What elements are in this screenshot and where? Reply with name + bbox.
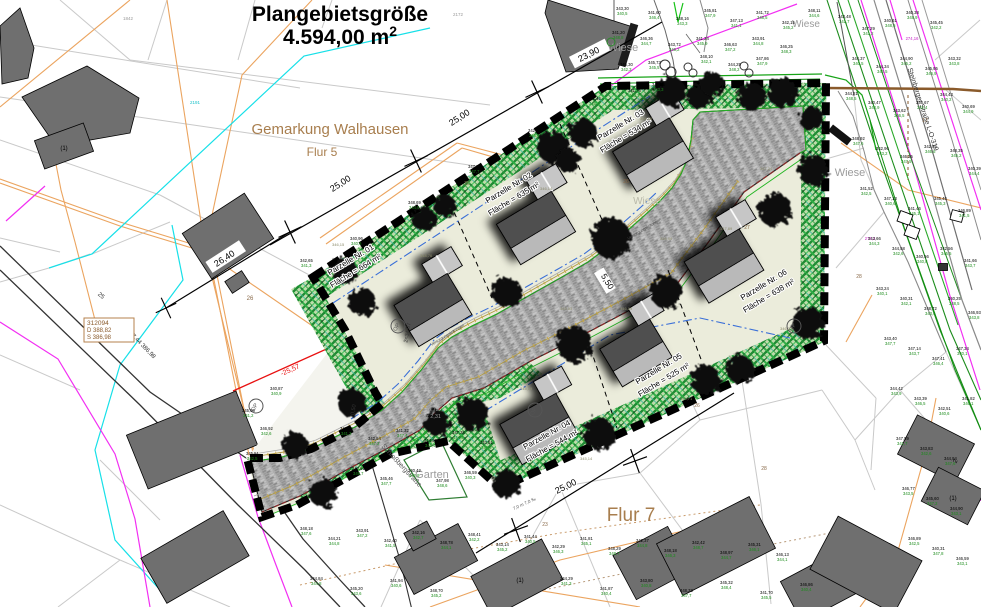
svg-text:347,6: 347,6 <box>301 531 312 536</box>
svg-text:345,2: 345,2 <box>951 153 962 158</box>
svg-text:346,1: 346,1 <box>963 401 974 406</box>
svg-text:347,9: 347,9 <box>705 13 716 18</box>
svg-text:346,3: 346,3 <box>553 549 564 554</box>
svg-text:345,19: 345,19 <box>520 386 533 391</box>
svg-text:342,7: 342,7 <box>413 535 424 540</box>
svg-text:344,9: 344,9 <box>869 105 880 110</box>
svg-text:348,9: 348,9 <box>481 445 492 450</box>
svg-text:23: 23 <box>542 522 548 528</box>
svg-text:340,6: 340,6 <box>939 411 950 416</box>
svg-text:312094: 312094 <box>87 320 109 327</box>
svg-text:340,6: 340,6 <box>885 201 896 206</box>
svg-text:26: 26 <box>464 181 470 187</box>
svg-text:Flur 5: Flur 5 <box>307 145 338 159</box>
svg-text:345,5: 345,5 <box>761 595 772 600</box>
svg-text:346,15: 346,15 <box>332 242 345 247</box>
svg-text:348,3: 348,3 <box>781 49 792 54</box>
svg-text:347,7: 347,7 <box>681 593 692 598</box>
svg-text:D 387,58: D 387,58 <box>422 393 444 399</box>
svg-text:344,8: 344,8 <box>311 581 322 586</box>
svg-text:344,8: 344,8 <box>753 41 764 46</box>
svg-text:25,00: 25,00 <box>447 107 471 128</box>
svg-text:344,4: 344,4 <box>969 171 980 176</box>
svg-text:Hz 2,31: Hz 2,31 <box>422 414 441 420</box>
svg-text:348,8: 348,8 <box>613 35 624 40</box>
svg-text:340,4: 340,4 <box>801 587 812 592</box>
svg-text:340,1: 340,1 <box>957 351 968 356</box>
svg-text:348,7: 348,7 <box>693 545 704 550</box>
svg-text:347,7: 347,7 <box>381 481 392 486</box>
svg-text:341,5: 341,5 <box>959 213 970 218</box>
svg-text:343,1: 343,1 <box>951 511 962 516</box>
svg-text:343,6: 343,6 <box>925 311 936 316</box>
svg-text:7,0 m 7,0 ‰: 7,0 m 7,0 ‰ <box>512 496 537 511</box>
svg-text:348,2: 348,2 <box>729 67 740 72</box>
svg-text:344,9: 344,9 <box>963 109 974 114</box>
svg-text:342,5: 342,5 <box>861 191 872 196</box>
svg-text:345,2: 345,2 <box>783 25 794 30</box>
svg-text:343,6: 343,6 <box>351 591 362 596</box>
svg-text:1842: 1842 <box>123 16 134 21</box>
svg-text:2191: 2191 <box>190 100 201 105</box>
svg-text:343,73: 343,73 <box>422 407 439 413</box>
svg-text:343,8: 343,8 <box>969 315 980 320</box>
svg-text:345,5: 345,5 <box>941 251 952 256</box>
svg-text:348,9: 348,9 <box>907 15 918 20</box>
svg-text:341,3: 341,3 <box>561 581 572 586</box>
svg-text:342,6: 342,6 <box>921 451 932 456</box>
svg-text:(1): (1) <box>949 496 956 502</box>
svg-text:Wiese: Wiese <box>792 19 820 30</box>
svg-text:347,5: 347,5 <box>901 159 912 164</box>
svg-text:342,9: 342,9 <box>409 473 420 478</box>
svg-text:344,7: 344,7 <box>721 555 732 560</box>
svg-text:(1): (1) <box>516 578 523 584</box>
svg-text:342,5: 342,5 <box>877 69 888 74</box>
svg-text:348,7: 348,7 <box>353 471 364 476</box>
svg-text:344,9: 344,9 <box>409 205 420 210</box>
svg-text:342,4: 342,4 <box>917 105 928 110</box>
svg-text:340,6: 340,6 <box>351 241 362 246</box>
svg-text:341,2: 341,2 <box>243 413 254 418</box>
svg-text:340,4: 340,4 <box>601 591 612 596</box>
svg-text:346,5: 346,5 <box>915 401 926 406</box>
svg-text:343,7: 343,7 <box>965 263 976 268</box>
svg-text:4.594,00 m2: 4.594,00 m2 <box>283 23 397 49</box>
svg-text:345,9: 345,9 <box>697 41 708 46</box>
svg-text:341,2: 341,2 <box>863 31 874 36</box>
svg-text:27: 27 <box>744 225 750 231</box>
svg-text:345,2: 345,2 <box>431 593 442 598</box>
svg-text:28: 28 <box>856 274 862 280</box>
svg-text:25,00: 25,00 <box>328 173 352 194</box>
svg-text:348,5: 348,5 <box>949 301 960 306</box>
svg-text:348,4: 348,4 <box>721 585 732 590</box>
svg-text:346,89: 346,89 <box>620 306 633 311</box>
svg-text:347,6: 347,6 <box>945 461 956 466</box>
svg-text:345,14: 345,14 <box>580 456 593 461</box>
svg-text:347,2: 347,2 <box>725 47 736 52</box>
svg-text:345,2: 345,2 <box>901 61 912 66</box>
svg-text:347,24: 347,24 <box>760 166 773 171</box>
svg-text:345,2: 345,2 <box>497 547 508 552</box>
svg-text:346,4: 346,4 <box>933 361 944 366</box>
svg-text:S 384,38: S 384,38 <box>422 400 444 406</box>
svg-text:348,5: 348,5 <box>757 15 768 20</box>
svg-text:340,5: 340,5 <box>617 11 628 16</box>
svg-text:341,3: 341,3 <box>341 431 352 436</box>
svg-text:342,2: 342,2 <box>469 537 480 542</box>
svg-text:348,5: 348,5 <box>885 23 896 28</box>
svg-text:345,1: 345,1 <box>581 541 592 546</box>
svg-text:346,3: 346,3 <box>665 553 676 558</box>
svg-text:342,1: 342,1 <box>901 301 912 306</box>
svg-text:346,14: 346,14 <box>540 186 553 191</box>
svg-text:346,37: 346,37 <box>780 326 793 331</box>
svg-text:344,8: 344,8 <box>637 543 648 548</box>
svg-text:344,1: 344,1 <box>441 545 452 550</box>
svg-text:344,7: 344,7 <box>641 41 652 46</box>
svg-text:341,1: 341,1 <box>731 23 742 28</box>
svg-text:341,3: 341,3 <box>301 263 312 268</box>
svg-text:343,3: 343,3 <box>653 87 664 92</box>
svg-text:25,00: 25,00 <box>553 477 578 496</box>
svg-text:28: 28 <box>761 466 767 472</box>
svg-text:346,6: 346,6 <box>925 149 936 154</box>
svg-text:347,2: 347,2 <box>357 533 368 538</box>
svg-text:Plangebietsgröße: Plangebietsgröße <box>252 3 428 26</box>
svg-text:341,5: 341,5 <box>385 543 396 548</box>
svg-text:345,71: 345,71 <box>680 396 693 401</box>
svg-text:345,5: 345,5 <box>649 65 660 70</box>
svg-text:341,7: 341,7 <box>839 19 850 24</box>
svg-text:345,4: 345,4 <box>589 101 600 106</box>
svg-text:26: 26 <box>694 403 700 409</box>
svg-text:343,8: 343,8 <box>949 61 960 66</box>
svg-text:347,7: 347,7 <box>885 341 896 346</box>
svg-text:346,2: 346,2 <box>669 47 680 52</box>
svg-text:346,5: 346,5 <box>894 113 905 118</box>
svg-text:346,99: 346,99 <box>660 236 673 241</box>
svg-text:25: 25 <box>96 292 105 301</box>
svg-text:Wiese: Wiese <box>835 167 866 179</box>
svg-text:345,1: 345,1 <box>909 211 920 216</box>
svg-text:343,2: 343,2 <box>877 151 888 156</box>
svg-text:340,2: 340,2 <box>941 97 952 102</box>
svg-text:340,9: 340,9 <box>271 391 282 396</box>
svg-text:343,7: 343,7 <box>909 351 920 356</box>
svg-text:274,16: 274,16 <box>906 36 919 41</box>
svg-text:344,6: 344,6 <box>453 435 464 440</box>
svg-text:Flur 7: Flur 7 <box>607 505 656 526</box>
svg-text:344,8: 344,8 <box>329 541 340 546</box>
svg-text:342,5: 342,5 <box>247 456 258 461</box>
svg-text:344,6: 344,6 <box>809 13 820 18</box>
svg-text:348,7: 348,7 <box>609 551 620 556</box>
svg-text:17: 17 <box>922 118 928 124</box>
svg-text:343,1: 343,1 <box>957 561 968 566</box>
svg-text:342,6: 342,6 <box>261 431 272 436</box>
svg-text:347,8: 347,8 <box>933 551 944 556</box>
svg-text:343,3: 343,3 <box>677 21 688 26</box>
svg-text:342,3: 342,3 <box>621 67 632 72</box>
svg-text:345,3: 345,3 <box>935 201 946 206</box>
svg-text:344,1: 344,1 <box>777 557 788 562</box>
svg-text:Gemarkung Walhausen: Gemarkung Walhausen <box>251 121 408 138</box>
svg-text:D 388,82: D 388,82 <box>87 328 112 334</box>
svg-text:(1): (1) <box>60 146 67 152</box>
svg-text:312093: 312093 <box>422 386 443 392</box>
svg-text:26: 26 <box>623 179 629 185</box>
svg-text:2172: 2172 <box>453 12 464 17</box>
svg-text:340,1: 340,1 <box>877 291 888 296</box>
svg-text:344,3: 344,3 <box>869 241 880 246</box>
svg-text:342,6: 342,6 <box>893 251 904 256</box>
svg-text:346,4: 346,4 <box>425 443 436 448</box>
svg-text:340,6: 340,6 <box>391 583 402 588</box>
svg-text:347,2: 347,2 <box>369 441 380 446</box>
svg-text:342,2: 342,2 <box>931 25 942 30</box>
svg-text:340,3: 340,3 <box>465 475 476 480</box>
svg-text:340,8: 340,8 <box>917 259 928 264</box>
svg-text:346,4: 346,4 <box>649 15 660 20</box>
svg-text:348,76: 348,76 <box>420 253 433 258</box>
svg-text:347,9: 347,9 <box>757 61 768 66</box>
svg-text:340,8: 340,8 <box>641 583 652 588</box>
svg-text:S 386,98: S 386,98 <box>87 335 112 341</box>
svg-text:347,6: 347,6 <box>853 141 864 146</box>
svg-text:343,9: 343,9 <box>891 391 902 396</box>
svg-text:340,5: 340,5 <box>525 539 536 544</box>
svg-text:341,7: 341,7 <box>897 441 908 446</box>
svg-text:347,2: 347,2 <box>927 501 938 506</box>
svg-text:347,7: 347,7 <box>469 169 480 174</box>
svg-text:348,6: 348,6 <box>437 483 448 488</box>
svg-text:Wiese: Wiese <box>633 196 661 207</box>
svg-text:343,7: 343,7 <box>629 93 640 98</box>
svg-text:346,96: 346,96 <box>640 116 653 121</box>
svg-text:340,5: 340,5 <box>853 61 864 66</box>
svg-text:345,53: 345,53 <box>560 306 573 311</box>
svg-text:342,1: 342,1 <box>701 59 712 64</box>
svg-text:346,1: 346,1 <box>749 547 760 552</box>
svg-text:342,5: 342,5 <box>909 541 920 546</box>
svg-text:343,5: 343,5 <box>903 491 914 496</box>
svg-text:347,4: 347,4 <box>397 433 408 438</box>
svg-text:346,9: 346,9 <box>926 71 937 76</box>
svg-text:26: 26 <box>247 296 254 302</box>
svg-text:Wiese: Wiese <box>608 42 639 54</box>
svg-text:345,6: 345,6 <box>529 133 540 138</box>
svg-text:348,5: 348,5 <box>846 96 857 101</box>
svg-text:347,89: 347,89 <box>720 226 733 231</box>
